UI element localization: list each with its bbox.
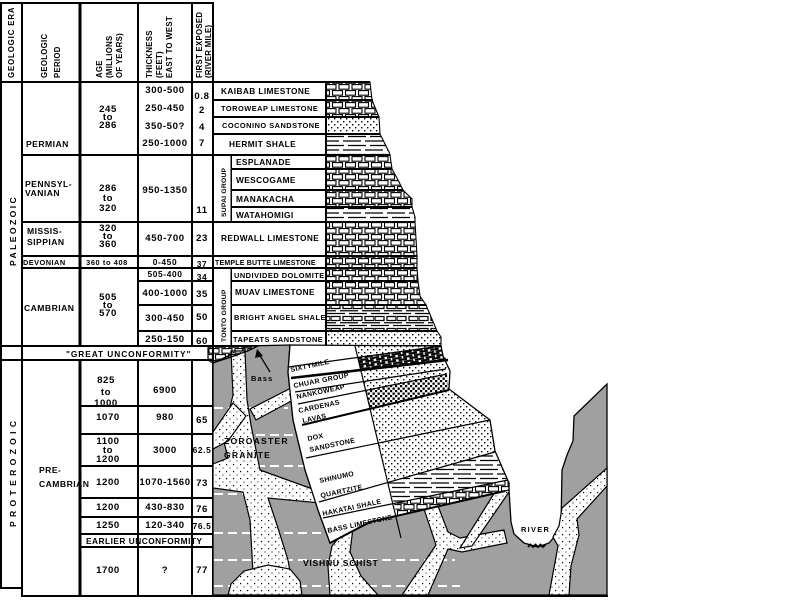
svg-text:TOROWEAP LIMESTONE: TOROWEAP LIMESTONE <box>221 104 318 113</box>
svg-text:3000: 3000 <box>153 445 177 456</box>
svg-text:950-1350: 950-1350 <box>142 185 187 196</box>
svg-text:505-400: 505-400 <box>148 269 183 279</box>
svg-text:1250: 1250 <box>96 520 120 531</box>
svg-text:300-450: 300-450 <box>145 313 184 324</box>
svg-text:GEOLOGIC ERA: GEOLOGIC ERA <box>7 7 16 78</box>
svg-text:250-1000: 250-1000 <box>142 138 187 149</box>
svg-text:23: 23 <box>196 233 208 244</box>
svg-text:"GREAT UNCONFORMITY": "GREAT UNCONFORMITY" <box>66 349 191 359</box>
svg-text:250-450: 250-450 <box>145 103 184 114</box>
svg-text:EAST TO WEST: EAST TO WEST <box>165 16 174 78</box>
svg-text:1200: 1200 <box>96 454 120 465</box>
svg-text:THICKNESS: THICKNESS <box>145 30 154 78</box>
svg-text:EARLIER UNCONFORMITY: EARLIER UNCONFORMITY <box>86 536 202 546</box>
svg-text:76: 76 <box>196 504 208 515</box>
svg-text:RIVER: RIVER <box>521 525 550 534</box>
svg-text:ESPLANADE: ESPLANADE <box>236 157 291 167</box>
svg-text:360 to 408: 360 to 408 <box>86 258 128 267</box>
svg-text:450-700: 450-700 <box>145 233 184 244</box>
svg-text:GRANITE: GRANITE <box>224 450 271 460</box>
svg-text:400-1000: 400-1000 <box>142 288 187 299</box>
svg-text:6900: 6900 <box>153 385 177 396</box>
svg-text:AGE: AGE <box>95 60 104 78</box>
svg-text:?: ? <box>162 565 168 576</box>
svg-text:PALEOZOIC: PALEOZOIC <box>8 195 18 266</box>
svg-text:1070: 1070 <box>96 412 120 423</box>
svg-text:ZOROASTER: ZOROASTER <box>224 436 289 446</box>
svg-text:250-150: 250-150 <box>145 334 184 345</box>
svg-text:BRIGHT ANGEL SHALE: BRIGHT ANGEL SHALE <box>234 313 326 322</box>
svg-text:MISSIS-: MISSIS- <box>27 226 62 236</box>
svg-text:PERMIAN: PERMIAN <box>26 139 69 149</box>
svg-text:35: 35 <box>196 289 208 300</box>
svg-text:300-500: 300-500 <box>145 85 184 96</box>
svg-text:SUPAI GROUP: SUPAI GROUP <box>221 167 228 217</box>
svg-text:SIPPIAN: SIPPIAN <box>27 237 65 247</box>
svg-text:1000: 1000 <box>94 398 118 409</box>
svg-text:320: 320 <box>99 203 117 214</box>
svg-text:980: 980 <box>156 412 174 423</box>
svg-text:0-450: 0-450 <box>153 257 177 267</box>
svg-text:UNDIVIDED DOLOMITE: UNDIVIDED DOLOMITE <box>234 271 325 280</box>
svg-text:FIRST EXPOSED: FIRST EXPOSED <box>195 12 204 78</box>
svg-text:PERIOD: PERIOD <box>53 46 62 78</box>
svg-text:77: 77 <box>196 565 208 576</box>
svg-text:WESCOGAME: WESCOGAME <box>236 175 296 185</box>
svg-text:1200: 1200 <box>96 477 120 488</box>
svg-text:WATAHOMIGI: WATAHOMIGI <box>236 210 294 220</box>
svg-text:PRE-: PRE- <box>39 465 61 475</box>
svg-text:GEOLOGIC: GEOLOGIC <box>40 34 49 78</box>
svg-text:HERMIT SHALE: HERMIT SHALE <box>229 139 296 149</box>
svg-text:73: 73 <box>196 478 208 489</box>
svg-text:TAPEATS SANDSTONE: TAPEATS SANDSTONE <box>233 335 323 344</box>
svg-text:0.8: 0.8 <box>194 91 209 102</box>
svg-text:VISHNU SCHIST: VISHNU SCHIST <box>303 558 379 568</box>
svg-text:62.5: 62.5 <box>193 445 212 455</box>
svg-text:570: 570 <box>99 308 117 319</box>
svg-text:DEVONIAN: DEVONIAN <box>23 258 66 267</box>
svg-text:7: 7 <box>199 138 205 149</box>
svg-text:(RIVER MILE): (RIVER MILE) <box>204 24 213 78</box>
svg-text:1200: 1200 <box>96 502 120 513</box>
svg-text:(FEET): (FEET) <box>155 51 164 78</box>
svg-text:REDWALL LIMESTONE: REDWALL LIMESTONE <box>221 233 319 243</box>
svg-text:120-340: 120-340 <box>145 520 184 531</box>
svg-text:VANIAN: VANIAN <box>25 188 60 198</box>
svg-text:TEMPLE BUTTE LIMESTONE: TEMPLE BUTTE LIMESTONE <box>215 260 316 267</box>
svg-text:1700: 1700 <box>96 565 120 576</box>
svg-text:CAMBRIAN: CAMBRIAN <box>24 303 74 313</box>
svg-text:4: 4 <box>199 122 205 133</box>
svg-text:11: 11 <box>196 205 207 216</box>
svg-text:Bass: Bass <box>251 374 273 383</box>
svg-text:286: 286 <box>99 120 117 131</box>
svg-text:60: 60 <box>196 336 208 347</box>
svg-text:CAMBRIAN: CAMBRIAN <box>39 479 89 489</box>
svg-text:430-830: 430-830 <box>145 502 184 513</box>
svg-text:TONTO GROUP: TONTO GROUP <box>221 289 228 342</box>
svg-text:350-50?: 350-50? <box>145 121 185 132</box>
svg-text:(MILLIONS: (MILLIONS <box>105 35 114 78</box>
svg-text:825: 825 <box>97 375 115 386</box>
svg-text:KAIBAB LIMESTONE: KAIBAB LIMESTONE <box>221 86 310 96</box>
svg-text:37: 37 <box>197 259 208 269</box>
svg-text:COCONINO SANDSTONE: COCONINO SANDSTONE <box>222 121 320 130</box>
svg-text:34: 34 <box>197 272 208 282</box>
svg-text:MUAV LIMESTONE: MUAV LIMESTONE <box>235 287 315 297</box>
svg-text:360: 360 <box>99 239 117 250</box>
svg-text:65: 65 <box>196 415 208 426</box>
svg-text:MANAKACHA: MANAKACHA <box>236 194 294 204</box>
svg-text:50: 50 <box>196 312 208 323</box>
svg-text:to: to <box>101 387 111 398</box>
svg-text:76.5: 76.5 <box>193 521 212 531</box>
svg-text:1070-1560: 1070-1560 <box>139 477 190 488</box>
svg-text:OF YEARS): OF YEARS) <box>115 33 124 78</box>
svg-text:PROTEROZOIC: PROTEROZOIC <box>8 417 18 527</box>
svg-text:2: 2 <box>199 105 205 116</box>
